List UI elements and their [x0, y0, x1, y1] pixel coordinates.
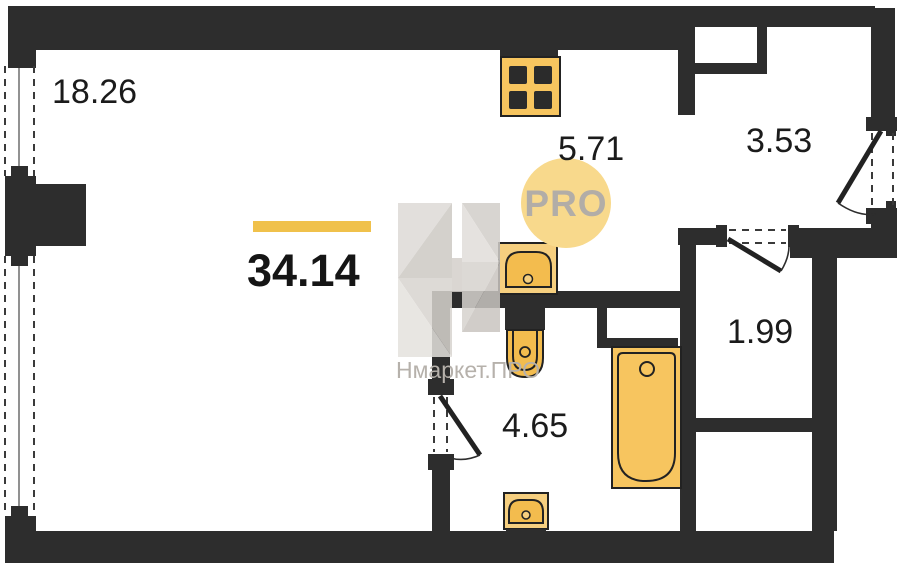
entrance-door-frame-top: [866, 117, 897, 131]
wall-band-left: [678, 228, 722, 245]
wall-bottom: [5, 531, 834, 563]
wall-shaft-right: [757, 27, 767, 67]
entrance-door-nub-top: [886, 129, 896, 136]
bathroom-sink-base: [506, 529, 546, 534]
wall-band-right: [790, 228, 897, 258]
wall-bathroom-left-lower: [432, 470, 450, 531]
watermark-logo: [398, 203, 500, 357]
window-upper: [5, 58, 34, 176]
room-area-label-bathroom: 4.65: [502, 407, 568, 445]
stove: [501, 57, 560, 116]
watermark-pro-badge: PRO: [521, 158, 611, 248]
window-upper-sill-bottom: [11, 166, 28, 176]
entrance-door-nub-bottom: [886, 201, 896, 208]
window-lower: [5, 256, 34, 516]
bathroom-door: [428, 379, 480, 470]
wall-left-pier: [5, 176, 36, 256]
watermark-brand-text: Нмаркет.ПРО: [396, 357, 540, 383]
bathtub: [612, 347, 681, 488]
pro-badge-text: PRO: [524, 183, 607, 224]
room-area-label-hallway: 3.53: [746, 122, 812, 160]
entrance-door-leaf: [838, 131, 881, 203]
hallway-door-swing-arc: [781, 246, 789, 271]
stove-burner-icon: [534, 91, 552, 109]
room-area-label-storage: 1.99: [727, 313, 793, 351]
hallway-door-frame-right: [788, 225, 799, 247]
wall-left-pier-extension: [36, 184, 86, 246]
total-area-label: 34.14: [247, 245, 360, 296]
total-area-accent-bar: [253, 221, 371, 232]
kitchen-sink: [499, 243, 557, 294]
kitchen-sink-drain-icon: [524, 275, 533, 284]
watermark-h-crossbar: [452, 258, 462, 292]
entrance-door-frame-bottom: [866, 208, 897, 224]
wall-shaft-bottom: [683, 63, 767, 74]
stove-burner-icon: [534, 66, 552, 84]
wall-top-right-thin: [683, 6, 875, 27]
entrance-door: [838, 117, 897, 224]
wall-right-top: [871, 8, 895, 120]
room-area-label-living: 18.26: [52, 73, 137, 111]
wall-storage-right: [812, 258, 837, 531]
bathroom-door-frame-bottom: [428, 454, 454, 470]
floor-plan-canvas: Нмаркет.ПРО PRO 18.26 5.71 3.53 1.99 4.6…: [0, 0, 900, 570]
window-lower-sill-top: [11, 256, 28, 266]
window-upper-sill-top: [11, 58, 28, 68]
wall-toilet-stub: [505, 308, 545, 330]
bathroom-door-swing-arc: [450, 455, 480, 459]
window-lower-sill-bottom: [11, 506, 28, 516]
hallway-door-frame-left: [716, 225, 727, 247]
wall-storage-bottom-divider: [696, 418, 812, 432]
bathroom-sink: [504, 493, 548, 534]
stove-burner-icon: [509, 91, 527, 109]
floor-plan: Нмаркет.ПРО PRO 18.26 5.71 3.53 1.99 4.6…: [0, 0, 900, 570]
bathroom-sink-drain-icon: [522, 511, 530, 519]
stove-burner-icon: [509, 66, 527, 84]
hallway-storage-door: [716, 225, 799, 271]
bathtub-body: [612, 347, 681, 488]
wall-top-main: [8, 6, 683, 50]
room-area-label-kitchen: 5.71: [558, 130, 624, 168]
wall-storage-left: [680, 245, 696, 531]
